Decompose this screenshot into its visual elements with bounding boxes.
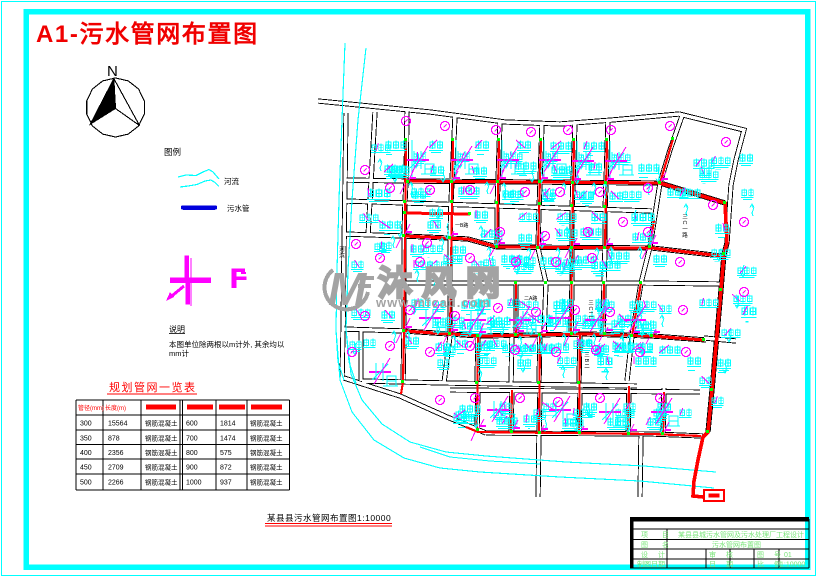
svg-text:一B路: 一B路 (455, 222, 468, 229)
svg-text:600: 600 (186, 421, 198, 428)
svg-text:河流: 河流 (224, 176, 239, 186)
svg-text:三C二: 三C二 (587, 300, 594, 318)
svg-text:三C一路: 三C一路 (681, 214, 688, 239)
svg-text:钢筋混凝土: 钢筋混凝土 (145, 433, 178, 442)
svg-text:N: N (107, 63, 118, 80)
svg-text:575: 575 (220, 450, 232, 457)
svg-text:二A路: 二A路 (524, 295, 537, 302)
svg-text:1:10000: 1:10000 (780, 562, 805, 569)
svg-text:钢筋混凝土: 钢筋混凝土 (250, 478, 283, 487)
svg-text:937: 937 (220, 480, 232, 487)
svg-text:400: 400 (80, 450, 92, 457)
svg-text:审 核: 审 核 (709, 550, 737, 559)
svg-text:450: 450 (80, 465, 92, 472)
svg-text:项 目: 项 目 (641, 531, 675, 539)
svg-text:某县县污水管网布置图1:10000: 某县县污水管网布置图1:10000 (267, 513, 391, 523)
svg-text:2266: 2266 (108, 480, 124, 487)
svg-text:2356: 2356 (108, 450, 124, 457)
svg-text:350: 350 (80, 435, 92, 442)
svg-text:管径(mm): 管径(mm) (78, 404, 104, 412)
svg-text:M: M (328, 263, 368, 315)
svg-text:872: 872 (220, 465, 232, 472)
svg-text:河滨: 河滨 (338, 245, 345, 260)
svg-text:图 号: 图 号 (757, 551, 785, 559)
svg-text:钢筋混凝土: 钢筋混凝土 (250, 448, 283, 457)
svg-text:三B二: 三B二 (583, 352, 590, 370)
svg-text:1474: 1474 (220, 435, 236, 442)
svg-text:日 期: 日 期 (709, 561, 737, 569)
svg-text:图 名: 图 名 (641, 540, 675, 549)
svg-text:钢筋混凝土: 钢筋混凝土 (145, 448, 178, 457)
svg-text:钢筋混凝土: 钢筋混凝土 (250, 433, 283, 442)
svg-text:某县县城污水管网及污水处理厂工程设计: 某县县城污水管网及污水处理厂工程设计 (678, 530, 804, 539)
svg-text:1000: 1000 (186, 480, 202, 487)
svg-text:钢筋混凝土: 钢筋混凝土 (250, 463, 283, 472)
svg-text:设 计: 设 计 (641, 550, 669, 559)
svg-text:图例: 图例 (164, 147, 181, 157)
svg-text:污水管网布置图: 污水管网布置图 (712, 540, 761, 549)
svg-text:本图单位除两根以m计外, 其余均以: 本图单位除两根以m计外, 其余均以 (169, 339, 285, 349)
svg-text:800: 800 (186, 450, 198, 457)
svg-text:钢筋混凝土: 钢筋混凝土 (145, 478, 178, 487)
svg-text:878: 878 (108, 435, 120, 442)
svg-text:长度(m): 长度(m) (105, 404, 126, 412)
svg-text:污水管: 污水管 (227, 203, 250, 213)
svg-text:01: 01 (784, 552, 792, 559)
svg-text:15564: 15564 (108, 421, 128, 428)
svg-text:300: 300 (80, 421, 92, 428)
svg-text:1814: 1814 (220, 421, 236, 428)
svg-text:钢筋混凝土: 钢筋混凝土 (145, 419, 178, 428)
svg-text:规划管网一览表: 规划管网一览表 (109, 380, 197, 394)
svg-text:制图日期: 制图日期 (637, 560, 665, 569)
svg-text:钢筋混凝土: 钢筋混凝土 (145, 463, 178, 472)
svg-text:说明: 说明 (169, 324, 185, 334)
svg-text:A1-污水管网布置图: A1-污水管网布置图 (36, 20, 259, 48)
svg-text:2709: 2709 (108, 465, 124, 472)
svg-text:mm计: mm计 (169, 348, 189, 358)
svg-text:500: 500 (80, 480, 92, 487)
svg-text:900: 900 (186, 465, 198, 472)
svg-text:700: 700 (186, 435, 198, 442)
svg-text:钢筋混凝土: 钢筋混凝土 (250, 419, 283, 428)
svg-text:www.mfcad.com: www.mfcad.com (375, 295, 491, 310)
